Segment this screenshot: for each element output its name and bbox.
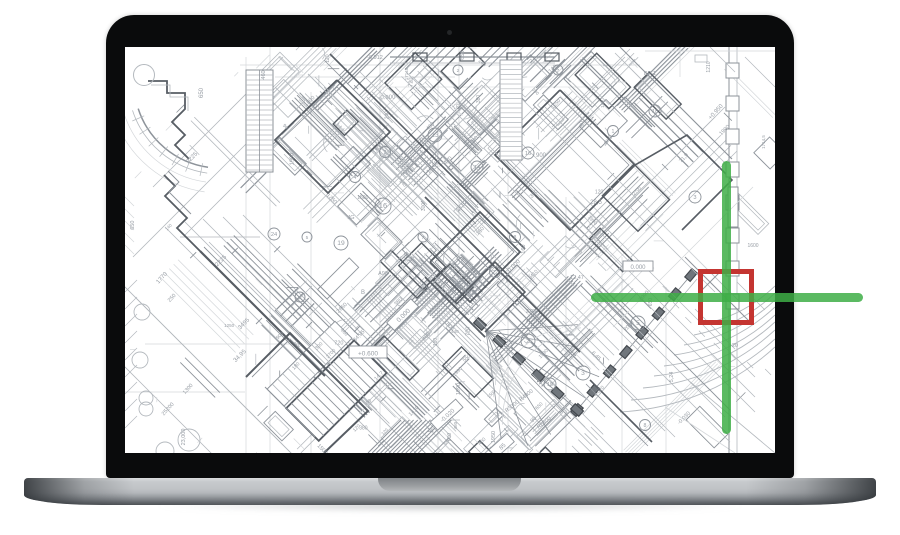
svg-text:13: 13	[427, 428, 433, 434]
svg-text:1990: 1990	[452, 366, 464, 378]
svg-text:19: 19	[547, 382, 553, 388]
svg-text:6,45: 6,45	[590, 350, 602, 362]
svg-text:+0.600: +0.600	[358, 351, 378, 358]
svg-text:1250: 1250	[550, 98, 562, 110]
svg-text:2700: 2700	[526, 309, 538, 315]
svg-text:3: 3	[693, 195, 696, 201]
svg-text:440: 440	[451, 329, 459, 334]
svg-text:5: 5	[636, 320, 640, 327]
svg-text:B: B	[361, 290, 365, 296]
svg-text:650: 650	[460, 51, 466, 60]
svg-text:2: 2	[526, 338, 530, 345]
svg-text:13: 13	[431, 132, 439, 139]
svg-text:A98: A98	[378, 271, 388, 277]
svg-text:1500: 1500	[357, 195, 368, 201]
svg-text:16: 16	[525, 151, 531, 157]
svg-text:120: 120	[325, 54, 331, 63]
svg-text:900: 900	[404, 252, 410, 261]
svg-text:24: 24	[271, 232, 277, 238]
svg-text:1600: 1600	[747, 243, 758, 249]
svg-text:120: 120	[380, 427, 389, 436]
svg-text:1770: 1770	[156, 271, 170, 285]
svg-text:BP-1: BP-1	[644, 71, 656, 77]
svg-text:140: 140	[164, 222, 173, 231]
svg-text:1210: 1210	[706, 61, 712, 72]
svg-text:25200: 25200	[161, 402, 176, 417]
svg-text:240: 240	[384, 111, 390, 120]
svg-text:8: 8	[644, 423, 647, 429]
svg-text:1: 1	[299, 295, 302, 301]
svg-text:14: 14	[474, 165, 480, 171]
svg-text:20: 20	[732, 343, 738, 349]
svg-text:650: 650	[130, 221, 136, 230]
svg-text:0.000: 0.000	[630, 265, 646, 271]
svg-text:720: 720	[466, 327, 472, 336]
svg-text:720: 720	[409, 78, 415, 87]
svg-text:3: 3	[581, 370, 585, 377]
svg-text:7: 7	[422, 235, 425, 241]
svg-text:18: 18	[652, 109, 658, 115]
svg-text:5,24: 5,24	[669, 372, 675, 383]
svg-text:16: 16	[379, 201, 387, 210]
svg-text:300: 300	[421, 203, 427, 212]
svg-text:250: 250	[167, 293, 178, 304]
svg-text:90: 90	[580, 121, 586, 127]
svg-text:240: 240	[477, 58, 487, 68]
svg-text:0.000: 0.000	[507, 258, 522, 273]
svg-text:180: 180	[433, 338, 439, 347]
svg-text:7: 7	[557, 68, 560, 74]
svg-text:720: 720	[334, 340, 343, 346]
svg-text:160: 160	[475, 226, 486, 237]
svg-text:120: 120	[293, 339, 302, 348]
svg-text:+0.950: +0.950	[708, 103, 725, 121]
svg-text:90: 90	[281, 123, 289, 131]
svg-text:140: 140	[600, 100, 605, 108]
svg-text:2520: 2520	[418, 288, 432, 294]
svg-text:380: 380	[531, 87, 540, 96]
svg-text:-0.912: -0.912	[367, 55, 383, 61]
svg-text:1990: 1990	[456, 383, 462, 395]
svg-text:460: 460	[261, 70, 267, 79]
svg-text:460: 460	[425, 121, 436, 132]
svg-text:8: 8	[514, 235, 517, 241]
svg-text:4: 4	[354, 175, 357, 181]
svg-text:460: 460	[453, 421, 458, 429]
svg-text:380: 380	[476, 95, 482, 104]
svg-text:650: 650	[199, 87, 205, 98]
svg-text:1714,5: 1714,5	[761, 135, 766, 149]
svg-text:19: 19	[337, 240, 345, 247]
svg-text:1990: 1990	[289, 153, 295, 165]
svg-text:1800: 1800	[464, 290, 476, 296]
svg-text:900: 900	[536, 153, 547, 159]
svg-text:460: 460	[477, 436, 487, 446]
svg-text:1: 1	[612, 129, 615, 135]
svg-text:12,47: 12,47	[570, 275, 584, 281]
svg-text:28,5: 28,5	[590, 200, 602, 206]
svg-text:1410: 1410	[408, 405, 421, 418]
svg-text:3495: 3495	[237, 317, 251, 331]
svg-text:120: 120	[595, 190, 604, 196]
svg-text:1300: 1300	[182, 383, 195, 396]
svg-text:JG: JG	[347, 215, 354, 221]
svg-text:550: 550	[462, 353, 472, 363]
svg-text:1250: 1250	[224, 323, 235, 328]
svg-text:2: 2	[384, 150, 387, 156]
svg-text:2225: 2225	[214, 254, 228, 268]
svg-text:2: 2	[457, 68, 460, 74]
svg-text:5: 5	[306, 235, 309, 241]
svg-text:22: 22	[492, 270, 498, 276]
svg-text:1950: 1950	[491, 431, 497, 443]
svg-text:-0.900: -0.900	[378, 95, 396, 102]
svg-text:1500: 1500	[316, 443, 329, 453]
svg-text:71,9: 71,9	[678, 152, 690, 164]
svg-text:160: 160	[521, 245, 527, 254]
